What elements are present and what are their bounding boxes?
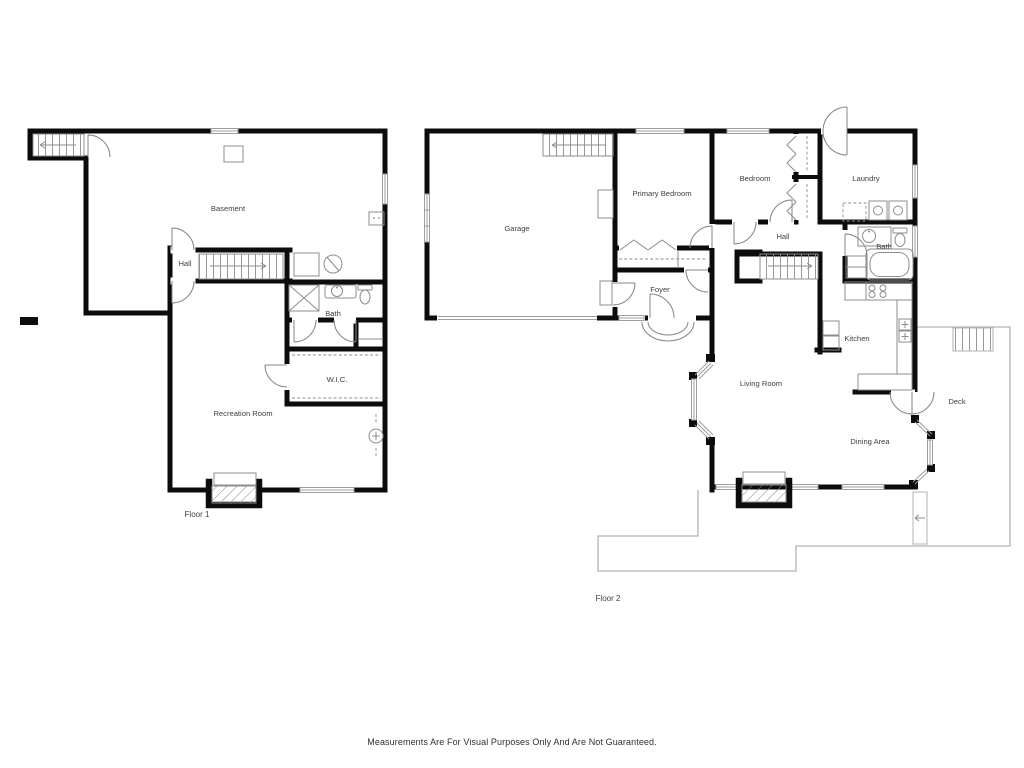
floor1-porch <box>209 473 259 505</box>
kitchen-deck-door <box>890 392 934 414</box>
label-dining-area: Dining Area <box>850 437 890 446</box>
garage-chimney <box>598 190 613 218</box>
label-kitchen: Kitchen <box>844 334 869 343</box>
stove-burner <box>880 292 886 298</box>
label-garage: Garage <box>504 224 529 233</box>
toilet-bowl <box>360 290 370 304</box>
floor2-outer-walls <box>427 131 915 490</box>
f2-toilet-tank <box>893 228 907 233</box>
basement-box-fixture <box>224 146 243 162</box>
label-floor1: Floor 1 <box>185 510 210 519</box>
front-door-steps <box>642 322 694 341</box>
stove-burner <box>880 285 886 291</box>
pantry-box <box>823 321 839 335</box>
floor1-wall-stub <box>20 317 38 325</box>
floor2-openings <box>424 128 919 491</box>
floor1-openings <box>171 128 389 494</box>
stove-burner <box>869 292 875 298</box>
floor2-plan: Garage Primary Bedroom Bedroom Laundry H… <box>424 107 1010 603</box>
deck-stairs <box>953 328 993 351</box>
floor2-porch <box>739 472 789 505</box>
label-f2-hall: Hall <box>776 232 789 241</box>
disclaimer-text: Measurements Are For Visual Purposes Onl… <box>0 737 1024 747</box>
dryer <box>889 201 907 220</box>
floorplan-canvas: Basement Hall Bath W.I.C. Recreation Roo… <box>0 0 1024 768</box>
label-floor2: Floor 2 <box>596 594 621 603</box>
f2-toilet-bowl <box>895 234 905 247</box>
label-basement: Basement <box>211 204 246 213</box>
label-bedroom: Bedroom <box>740 174 771 183</box>
label-foyer: Foyer <box>650 285 670 294</box>
floor1-plan: Basement Hall Bath W.I.C. Recreation Roo… <box>20 128 389 520</box>
kitchen-counter-bottom <box>858 374 912 390</box>
label-f2-bath: Bath <box>876 242 892 251</box>
bathtub <box>866 249 913 280</box>
toilet-tank <box>358 285 372 290</box>
label-recreation-room: Recreation Room <box>213 409 272 418</box>
dining-bay-window <box>909 415 935 489</box>
furnace <box>294 253 319 276</box>
label-deck: Deck <box>948 397 966 406</box>
floor2-windows <box>425 129 918 490</box>
label-wic: W.I.C. <box>327 375 348 384</box>
label-f1-bath: Bath <box>325 309 341 318</box>
label-living-room: Living Room <box>740 379 782 388</box>
washer <box>869 201 887 220</box>
floor1-stairs <box>33 134 283 279</box>
label-primary-bedroom: Primary Bedroom <box>632 189 691 198</box>
label-f1-hall: Hall <box>178 259 191 268</box>
living-room-bay-window <box>689 354 715 445</box>
stove-burner <box>869 285 875 291</box>
floorplan-drawing: Basement Hall Bath W.I.C. Recreation Roo… <box>0 0 1024 768</box>
laundry-counter <box>843 203 866 221</box>
wall-panel <box>369 212 384 225</box>
kitchen-counter-top <box>845 282 912 300</box>
label-laundry: Laundry <box>852 174 880 183</box>
garage-threshold <box>600 281 612 305</box>
deck-outline <box>598 327 1010 571</box>
